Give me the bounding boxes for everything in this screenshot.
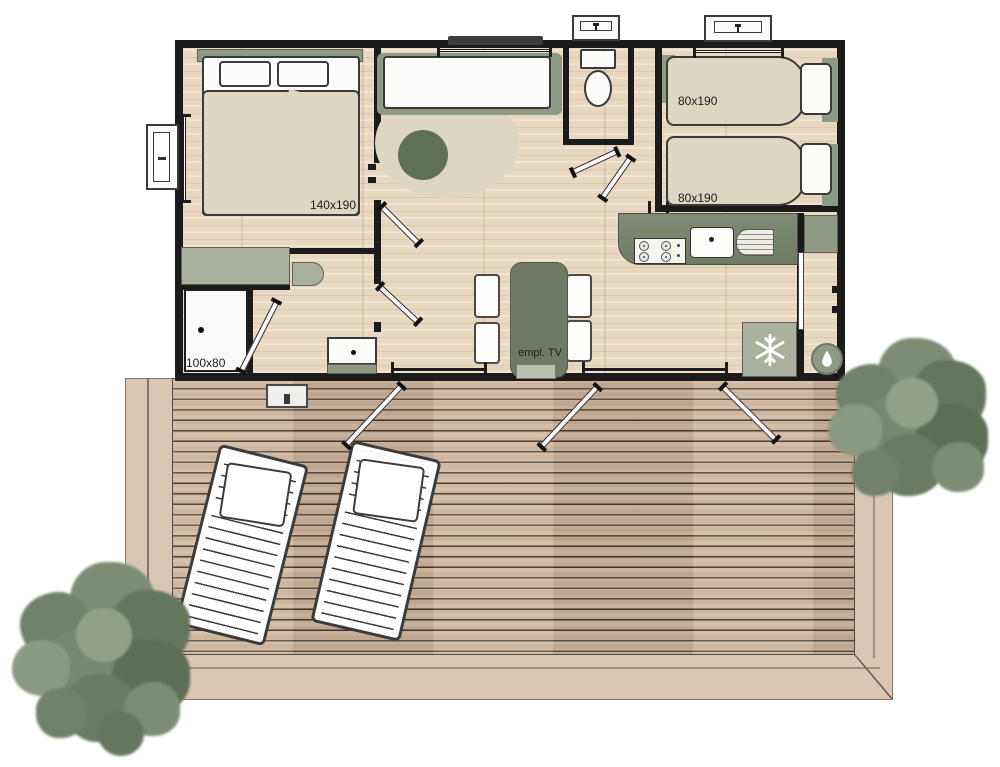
tv-stand <box>516 364 556 379</box>
door-threshold <box>583 368 728 371</box>
cooktop <box>634 238 686 264</box>
door-hinge <box>368 164 376 170</box>
window-tick <box>781 46 784 58</box>
pillow <box>800 63 832 115</box>
window-box <box>146 124 179 190</box>
wall <box>374 322 381 332</box>
deck-utility-box <box>266 384 308 408</box>
vanity-unit <box>292 262 324 286</box>
wall <box>655 48 662 210</box>
tree <box>828 338 998 508</box>
knob <box>677 244 680 247</box>
bed-size-label: 80x190 <box>678 191 717 205</box>
sliding-door <box>798 252 804 330</box>
faucet <box>709 237 714 242</box>
threshold-tick <box>391 362 394 376</box>
floor-plan: 140x190 100x80 80x190 <box>0 0 1000 767</box>
washbasin <box>327 337 377 365</box>
toilet-bowl <box>584 70 612 107</box>
basin-drain <box>351 350 356 355</box>
window-shutter <box>448 36 543 45</box>
window-tick <box>693 46 696 58</box>
wall <box>628 48 634 145</box>
threshold-tick <box>725 362 728 376</box>
wall <box>374 200 381 284</box>
window-pane <box>694 50 784 53</box>
knob <box>677 254 680 257</box>
washbasin-cabinet <box>327 364 377 374</box>
lounger-pillow <box>219 462 293 528</box>
wall <box>290 248 381 254</box>
wall <box>655 205 845 212</box>
window-handle-stem <box>595 25 597 31</box>
window-tick <box>549 44 552 57</box>
utility-box-item <box>284 394 290 404</box>
window-pane <box>183 116 186 202</box>
wall <box>563 139 634 145</box>
door-hinge <box>832 306 839 313</box>
door-hinge <box>368 177 376 183</box>
shower-size-label: 100x80 <box>186 356 225 370</box>
wardrobe <box>181 247 290 285</box>
lounger-pillow <box>352 458 425 523</box>
sofa-cushion <box>383 56 551 109</box>
pillow <box>219 61 271 87</box>
kitchen-sink <box>690 227 734 258</box>
door-threshold <box>392 368 487 371</box>
dish-drainer <box>736 229 774 256</box>
pillow <box>277 61 329 87</box>
chair <box>474 274 500 318</box>
dining-table <box>510 262 568 378</box>
bed-size-label: 140x190 <box>262 198 356 212</box>
burner <box>639 241 649 251</box>
chair <box>474 322 500 364</box>
chair <box>566 274 592 318</box>
tv-spot-label: empl. TV <box>508 347 572 359</box>
closet-shelf <box>804 215 838 253</box>
burner <box>661 252 671 262</box>
burner <box>639 252 649 262</box>
fridge <box>742 322 797 377</box>
tree <box>12 562 207 762</box>
window-box <box>704 15 772 42</box>
door-hinge <box>832 286 839 293</box>
pillow <box>800 143 832 195</box>
shower-drain <box>198 327 204 333</box>
window-box <box>572 15 620 41</box>
window-handle-stem <box>737 26 739 32</box>
bed-size-label: 80x190 <box>678 94 717 108</box>
threshold-tick <box>582 362 585 376</box>
toilet-tank <box>580 49 616 69</box>
wall <box>563 48 569 145</box>
twin-bed <box>666 56 806 126</box>
burner <box>661 241 671 251</box>
window-tick <box>178 114 191 117</box>
threshold-tick <box>484 362 487 376</box>
window-pane <box>438 49 552 52</box>
window-handle <box>158 157 166 160</box>
window-tick <box>437 44 440 57</box>
floor-cushion <box>398 130 448 180</box>
window-tick <box>178 200 191 203</box>
snowflake-icon <box>753 333 787 367</box>
